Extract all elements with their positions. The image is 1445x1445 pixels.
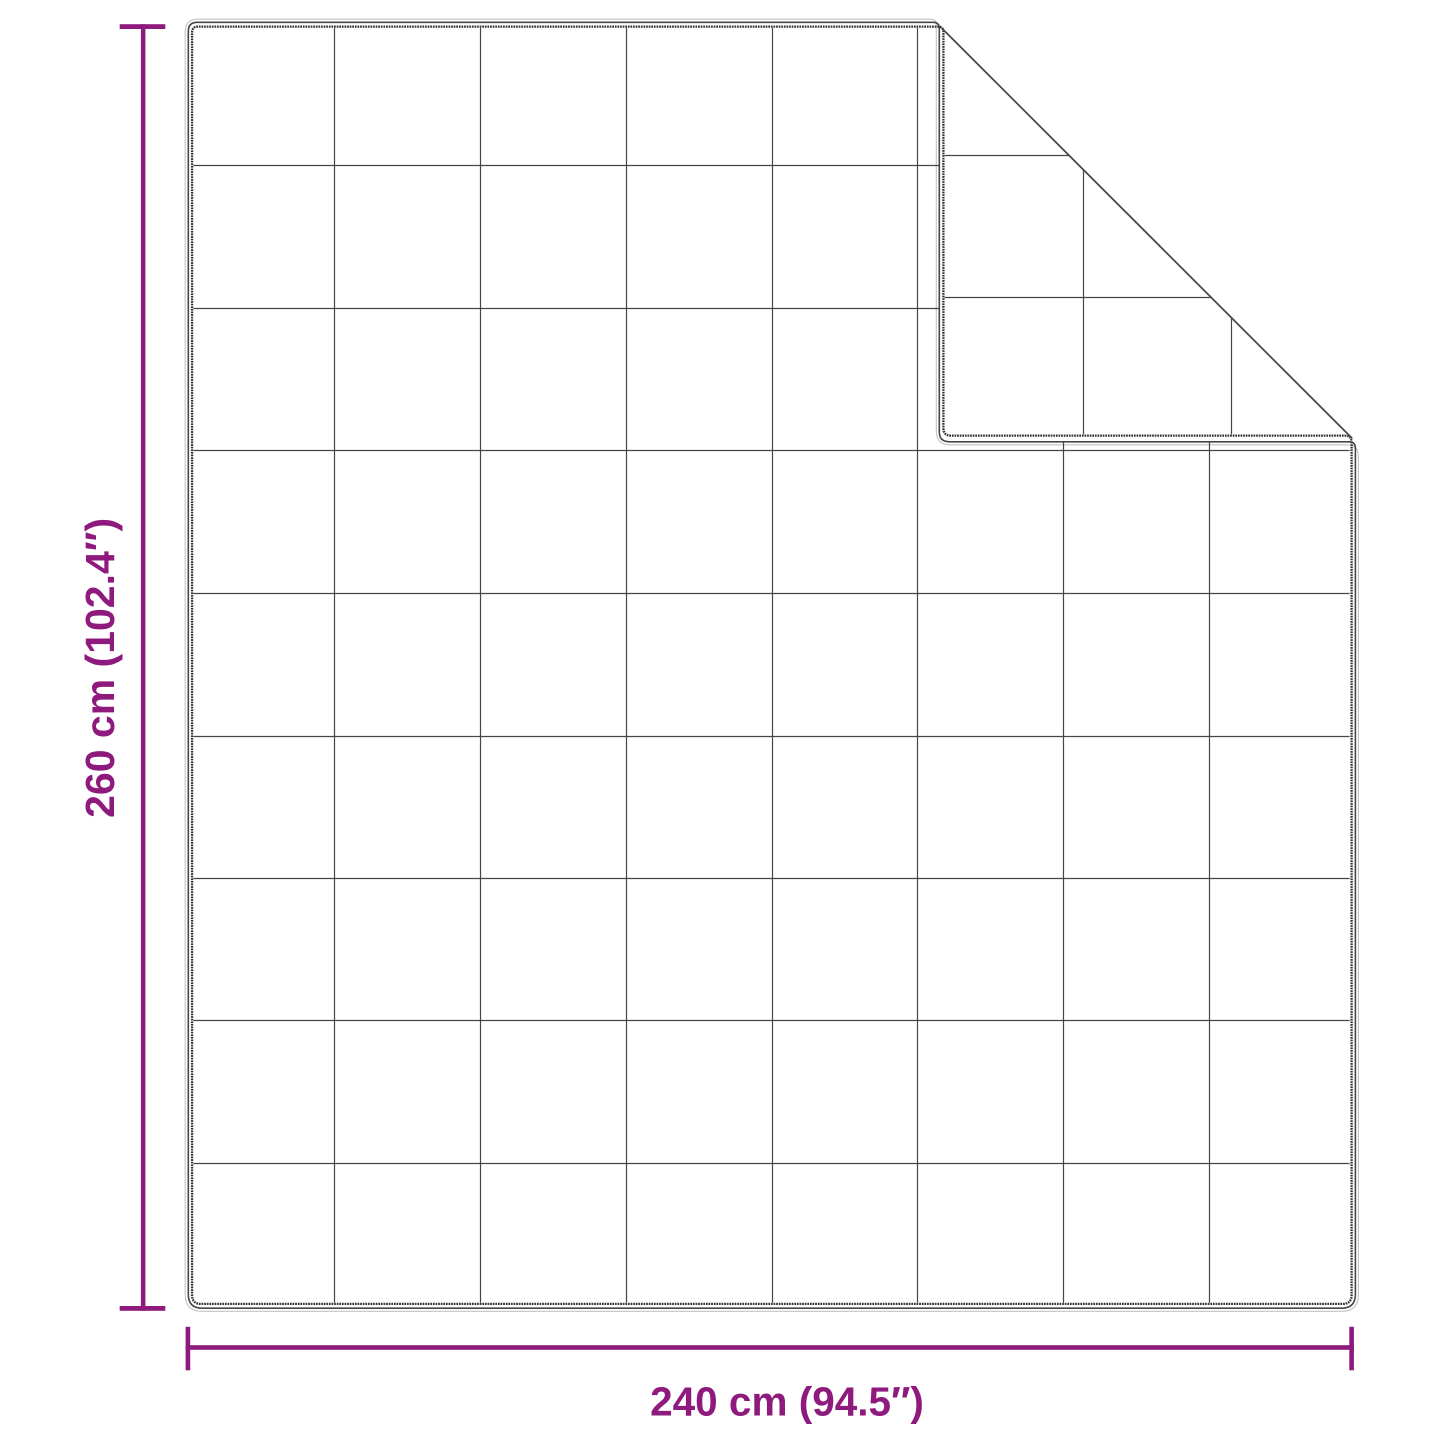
svg-text:240 cm (94.5″): 240 cm (94.5″) [650, 1379, 924, 1425]
svg-text:260 cm (102.4″): 260 cm (102.4″) [77, 518, 123, 818]
